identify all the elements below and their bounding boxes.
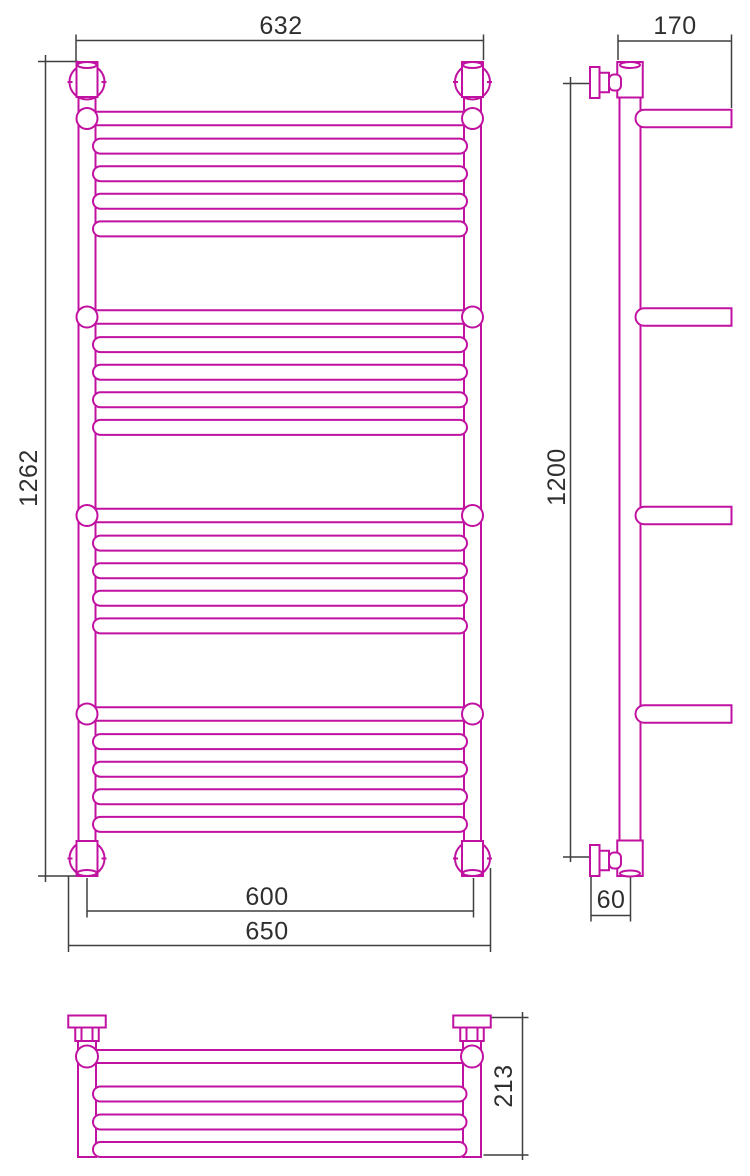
towel-rail-technical-drawing: 6321262600650170120060213 <box>0 0 750 1176</box>
tube-cap <box>463 870 482 876</box>
rung <box>93 789 467 804</box>
dim-label-front_height: 1262 <box>15 449 43 507</box>
tube-cap <box>463 62 482 68</box>
shelf-tube <box>93 1115 467 1130</box>
vertical-rail <box>79 63 96 876</box>
tube-cap <box>620 62 640 68</box>
shelf-bar-end-circle <box>77 307 98 328</box>
tube-end-circle <box>461 1046 483 1068</box>
tube-cap <box>78 62 97 68</box>
rung <box>93 139 467 154</box>
dim-label-side_height: 1200 <box>543 448 571 506</box>
rung <box>93 734 467 749</box>
shelf-arm <box>636 507 732 525</box>
rung <box>93 194 467 209</box>
dim-label-bottom_depth: 213 <box>490 1064 518 1107</box>
shelf-bar <box>87 112 473 126</box>
shelf-bar-end-circle <box>462 505 483 526</box>
bottom-view <box>68 1016 491 1158</box>
rung <box>93 221 467 236</box>
rung <box>93 817 467 832</box>
shelf-bar-end-circle <box>77 704 98 725</box>
cross-tube <box>87 1050 472 1063</box>
shelf-tube <box>93 1142 467 1157</box>
rung <box>93 365 467 380</box>
front-view <box>68 62 493 876</box>
side-tube <box>620 63 641 876</box>
shelf-bar <box>87 707 473 721</box>
bracket-cap <box>453 1016 491 1028</box>
dim-label-front_rail_centers: 600 <box>245 883 288 911</box>
shelf-arm <box>636 705 732 723</box>
shelf-bar-end-circle <box>77 505 98 526</box>
rung <box>93 591 467 606</box>
shelf-tube <box>93 1087 467 1102</box>
valve-wall-flange <box>590 845 600 876</box>
rung <box>93 420 467 435</box>
valve-wall-flange <box>590 67 600 98</box>
bracket-cap <box>68 1016 106 1028</box>
shelf-arm <box>636 308 732 326</box>
technical-drawing-page: 6321262600650170120060213 <box>0 0 750 1176</box>
shelf-arm <box>636 110 732 128</box>
dim-label-front_width_top: 632 <box>259 12 302 40</box>
vertical-rail <box>464 63 481 876</box>
rung <box>93 563 467 578</box>
rung <box>93 166 467 181</box>
tube-end-circle <box>76 1046 98 1068</box>
valve-cone <box>609 75 621 91</box>
dim-label-front_width_outer: 650 <box>245 918 288 946</box>
side-view <box>590 62 732 877</box>
shelf-bar-end-circle <box>462 704 483 725</box>
rung <box>93 618 467 633</box>
shelf-bar <box>87 310 473 324</box>
bracket-nut <box>460 1028 484 1042</box>
valve-cone <box>609 853 621 869</box>
shelf-bar-end-circle <box>462 108 483 129</box>
shelf-bar <box>87 509 473 523</box>
valve-nut <box>600 851 610 871</box>
rung <box>93 337 467 352</box>
rung <box>93 392 467 407</box>
rung <box>93 536 467 551</box>
tube-cap <box>620 871 640 877</box>
valve-nut <box>600 73 610 93</box>
bracket-nut <box>75 1028 99 1042</box>
shelf-bar-end-circle <box>462 307 483 328</box>
dim-label-side_depth: 170 <box>653 12 696 40</box>
dim-label-side_wall_offset: 60 <box>597 886 626 914</box>
shelf-bar-end-circle <box>77 108 98 129</box>
tube-cap <box>78 870 97 876</box>
rung <box>93 762 467 777</box>
